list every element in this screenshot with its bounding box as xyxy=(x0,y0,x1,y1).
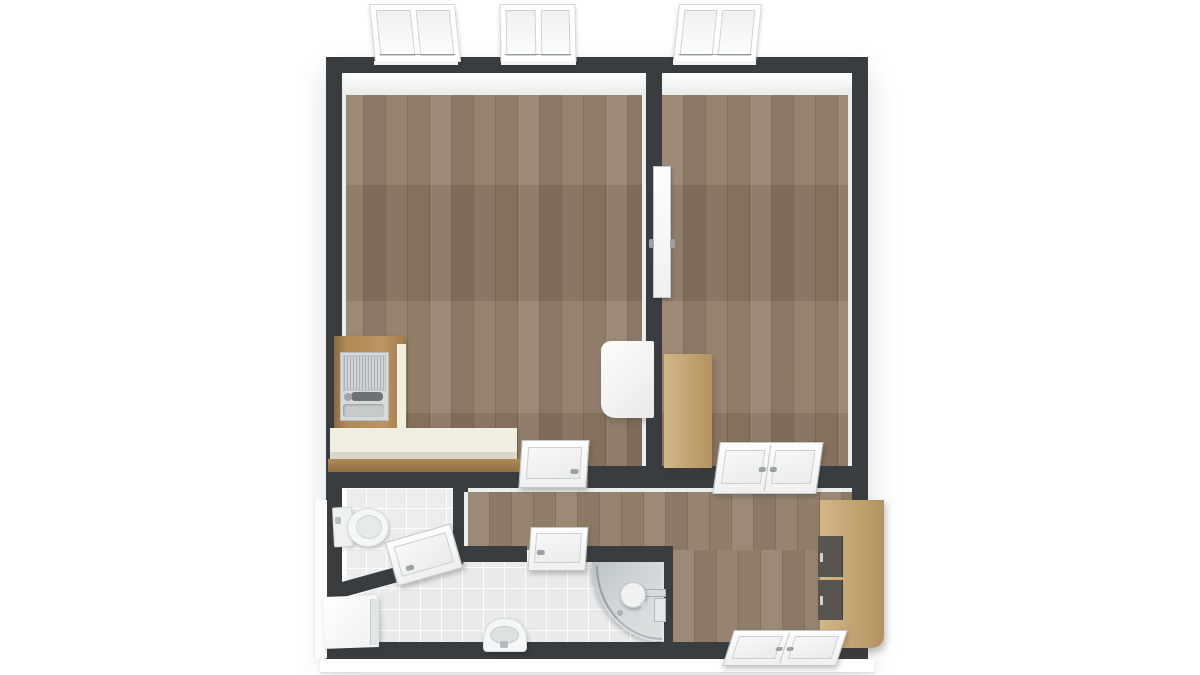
white-cabinet-living xyxy=(601,341,654,418)
north-wall-inner-face xyxy=(342,73,852,95)
sink-faucet-bar xyxy=(351,392,383,401)
washing-machine-side xyxy=(370,599,379,645)
shower-valve xyxy=(654,598,666,622)
sink-drainer xyxy=(343,355,386,391)
sink-basin xyxy=(343,404,384,417)
wall-mid-segment-3 xyxy=(816,466,852,488)
door-living-bedroom xyxy=(653,166,671,298)
door-bedroom-hall-double xyxy=(712,442,823,494)
window-3 xyxy=(673,4,762,62)
floor-plan-stage xyxy=(0,0,1200,675)
kitchen-counter-top xyxy=(330,428,517,454)
window-1 xyxy=(369,4,461,62)
door-bathroom-hall xyxy=(527,527,588,571)
drawer-handle-1 xyxy=(820,553,823,562)
hallway-floor xyxy=(468,488,852,550)
drawer-handle-2 xyxy=(820,596,823,605)
window-2-sill xyxy=(501,61,576,65)
window-3-pane-left xyxy=(680,10,718,56)
shower-knob xyxy=(640,601,647,608)
wall-bath-hall-1 xyxy=(460,546,527,562)
toilet-seat-ring xyxy=(356,515,382,539)
kitchen-cabinet-cream-edge xyxy=(397,344,406,432)
window-1-pane-left xyxy=(376,10,415,56)
wall-mid-segment-2 xyxy=(588,466,716,488)
door-entry-double xyxy=(722,630,848,666)
wall-wc-hall-face xyxy=(464,492,468,550)
toilet-flush-button xyxy=(335,517,341,524)
window-2-pane-right xyxy=(540,10,570,56)
wardrobe-bedroom xyxy=(664,354,712,468)
window-3-sill xyxy=(673,61,756,65)
wall-east-face xyxy=(848,95,852,466)
shower-drain xyxy=(617,610,623,616)
window-2 xyxy=(499,4,576,62)
window-1-track xyxy=(379,54,455,55)
window-3-pane-right xyxy=(718,10,756,56)
window-2-pane-left xyxy=(506,10,536,56)
window-1-sill xyxy=(374,61,458,65)
window-2-track xyxy=(505,54,571,55)
sink-faucet-knob xyxy=(344,393,352,401)
window-1-pane-right xyxy=(415,10,454,56)
kitchen-counter-base xyxy=(328,459,524,472)
door-living-hall xyxy=(518,440,589,488)
washbasin-faucet xyxy=(500,641,508,648)
window-3-track xyxy=(679,54,752,55)
